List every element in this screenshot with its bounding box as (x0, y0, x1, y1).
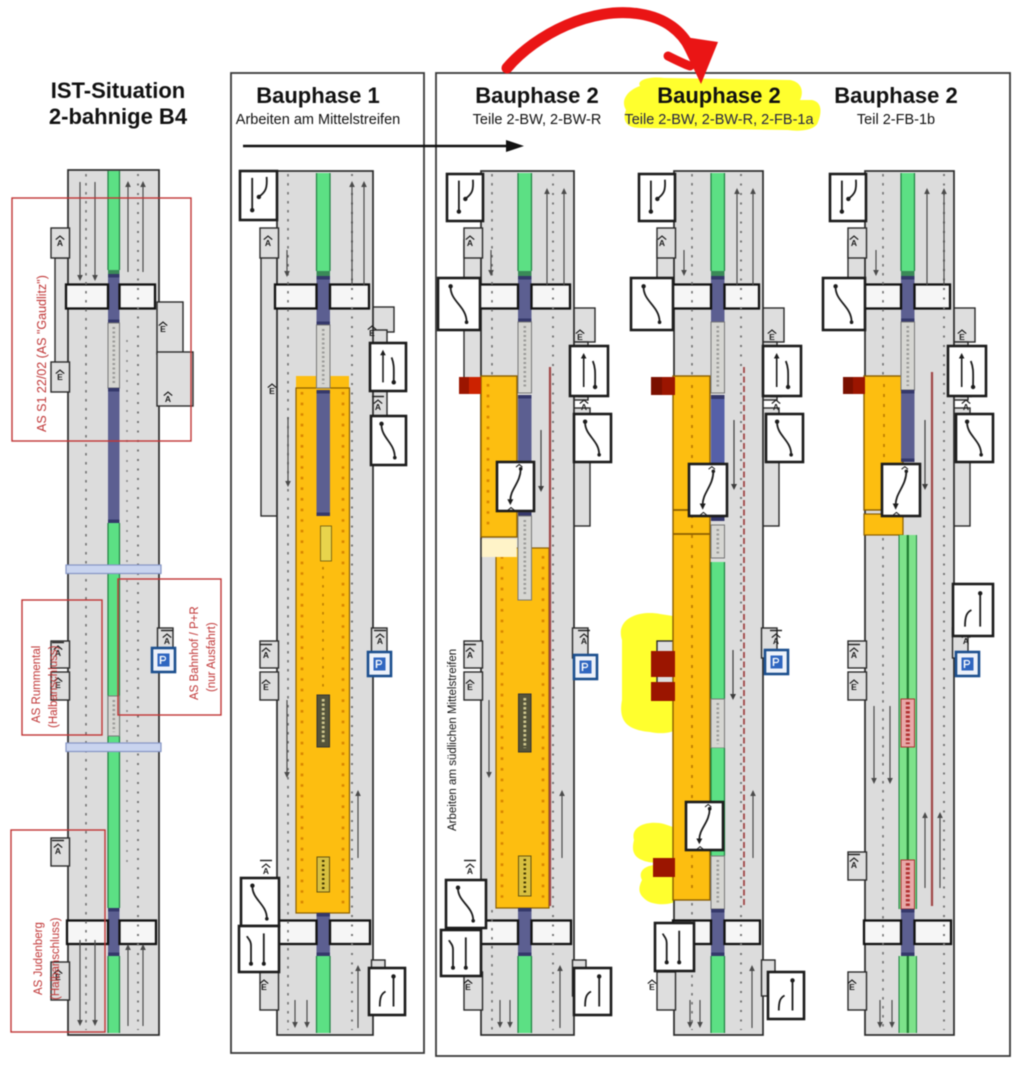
svg-text:AS Bahnhof / P+R: AS Bahnhof / P+R (189, 606, 201, 700)
svg-text:(Halbanschluss): (Halbanschluss) (50, 917, 62, 1000)
svg-text:E: E (467, 682, 473, 692)
svg-text:A: A (165, 394, 171, 404)
svg-text:Bauphase 2: Bauphase 2 (475, 83, 599, 108)
svg-text:E: E (57, 372, 63, 382)
svg-text:Arbeiten am südlichen Mittelst: Arbeiten am südlichen Mittelstreifen (447, 649, 459, 831)
svg-text:E: E (369, 328, 375, 338)
svg-text:AS Judenberg: AS Judenberg (33, 922, 45, 995)
svg-text:Teile 2-BW, 2-BW-R: Teile 2-BW, 2-BW-R (473, 112, 602, 128)
svg-text:Bauphase 2: Bauphase 2 (834, 83, 958, 108)
svg-text:AS S1 22/02 (AS "Gaudlitz"): AS S1 22/02 (AS "Gaudlitz") (35, 275, 49, 432)
svg-text:A: A (467, 650, 473, 660)
svg-text:E: E (160, 324, 166, 334)
svg-text:A: A (263, 866, 269, 876)
svg-text:A: A (851, 650, 857, 660)
svg-text:A: A (851, 238, 857, 248)
svg-text:Bauphase 1: Bauphase 1 (256, 83, 380, 108)
svg-text:E: E (851, 682, 857, 692)
svg-text:E: E (649, 982, 655, 992)
svg-text:A: A (57, 238, 63, 248)
svg-text:A: A (55, 846, 61, 856)
svg-text:A: A (375, 402, 381, 412)
svg-text:A: A (581, 636, 587, 646)
svg-text:E: E (261, 982, 267, 992)
svg-text:E: E (269, 386, 275, 396)
svg-text:A: A (851, 860, 857, 870)
svg-text:A: A (773, 636, 779, 646)
svg-text:Teile 2-BW, 2-BW-R, 2-FB-1a: Teile 2-BW, 2-BW-R, 2-FB-1a (624, 112, 814, 128)
svg-text:A: A (377, 636, 383, 646)
svg-text:A: A (659, 238, 665, 248)
svg-text:E: E (959, 332, 965, 342)
svg-text:A: A (164, 636, 170, 646)
svg-text:E: E (849, 982, 855, 992)
svg-text:Arbeiten am Mittelstreifen: Arbeiten am Mittelstreifen (236, 112, 400, 128)
svg-text:A: A (773, 402, 779, 412)
svg-text:A: A (963, 636, 969, 646)
svg-text:Bauphase 2: Bauphase 2 (657, 83, 781, 108)
svg-text:2-bahnige B4: 2-bahnige B4 (49, 104, 188, 129)
svg-text:A: A (963, 402, 969, 412)
svg-text:E: E (465, 982, 471, 992)
svg-text:AS Rummental: AS Rummental (31, 646, 43, 723)
svg-text:A: A (467, 866, 473, 876)
svg-text:A: A (467, 238, 473, 248)
svg-text:E: E (577, 332, 583, 342)
svg-text:A: A (581, 402, 587, 412)
svg-text:(nur Ausfahrt): (nur Ausfahrt) (206, 622, 218, 692)
svg-text:(Halbanschluss): (Halbanschluss) (48, 645, 60, 728)
svg-text:A: A (263, 650, 269, 660)
svg-text:Teil 2-FB-1b: Teil 2-FB-1b (857, 112, 935, 128)
svg-text:E: E (263, 682, 269, 692)
svg-text:A: A (265, 238, 271, 248)
svg-text:E: E (769, 332, 775, 342)
svg-text:IST-Situation: IST-Situation (51, 78, 185, 103)
